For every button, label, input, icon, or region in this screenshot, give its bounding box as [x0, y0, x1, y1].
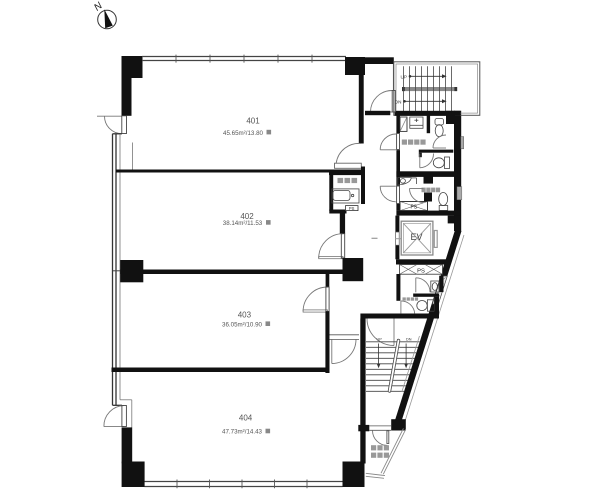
svg-text:404: 404 — [239, 413, 253, 422]
svg-text:45.65m²/13.80: 45.65m²/13.80 — [223, 130, 263, 137]
svg-text:UP: UP — [377, 338, 383, 342]
svg-text:EV: EV — [410, 232, 422, 242]
svg-text:401: 401 — [246, 116, 260, 125]
svg-text:PS: PS — [349, 206, 355, 211]
svg-text:PS: PS — [410, 204, 417, 210]
svg-text:47.73m²/14.43: 47.73m²/14.43 — [222, 429, 262, 436]
svg-text:36.05m²/10.90: 36.05m²/10.90 — [222, 321, 262, 328]
svg-text:DN: DN — [395, 100, 402, 105]
svg-text:DN: DN — [406, 338, 412, 342]
svg-text:PS: PS — [417, 268, 425, 274]
svg-text:403: 403 — [238, 310, 252, 319]
svg-text:UP: UP — [401, 75, 407, 80]
svg-text:38.14m²/11.53: 38.14m²/11.53 — [223, 220, 263, 227]
